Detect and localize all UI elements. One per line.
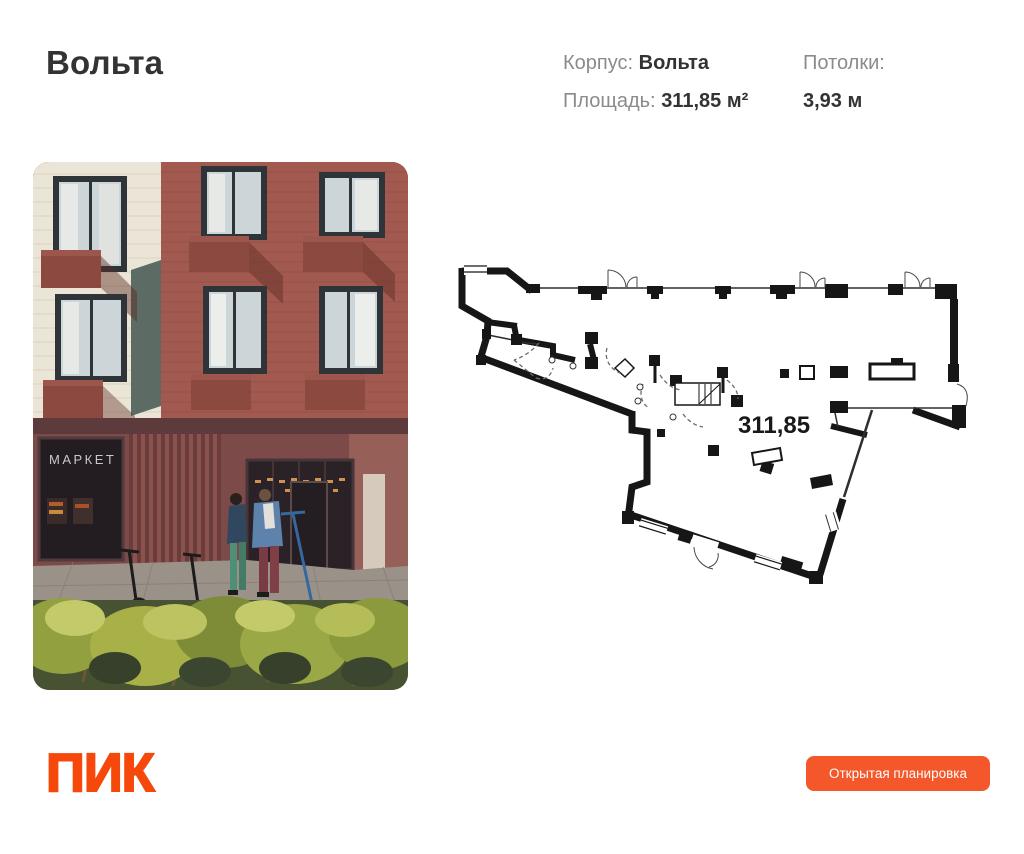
spec-ceiling-value-row: 3,93 м (803, 90, 862, 113)
page-title: Вольта (46, 44, 163, 82)
spec-ceiling-label-row: Потолки: (803, 52, 885, 75)
spec-area: Площадь: 311,85 м² (563, 90, 748, 113)
spec-ceiling-label: Потолки: (803, 52, 885, 74)
spec-area-value: 311,85 м² (661, 90, 748, 112)
listing-card: Вольта Корпус: Вольта Площадь: 311,85 м²… (0, 0, 1024, 854)
building-photo-render: МАРКЕТ (33, 162, 408, 690)
open-layout-button[interactable]: Открытая планировка (806, 756, 990, 791)
floor-plan: 311,85 (455, 256, 975, 596)
spec-building: Корпус: Вольта (563, 52, 709, 75)
plan-area-label: 311,85 (738, 412, 810, 439)
spec-building-value: Вольта (639, 52, 709, 74)
storefront: МАРКЕТ (39, 438, 123, 560)
market-sign: МАРКЕТ (49, 452, 116, 467)
building-photo: МАРКЕТ (33, 162, 408, 690)
spec-building-label: Корпус: (563, 52, 633, 74)
bushes (33, 596, 408, 690)
pik-logo: ПИК (46, 742, 154, 804)
spec-area-label: Площадь: (563, 90, 656, 112)
spec-ceiling-value: 3,93 м (803, 90, 862, 112)
floor-plan-drawing: 311,85 (455, 256, 975, 596)
window-row-2 (55, 286, 383, 382)
